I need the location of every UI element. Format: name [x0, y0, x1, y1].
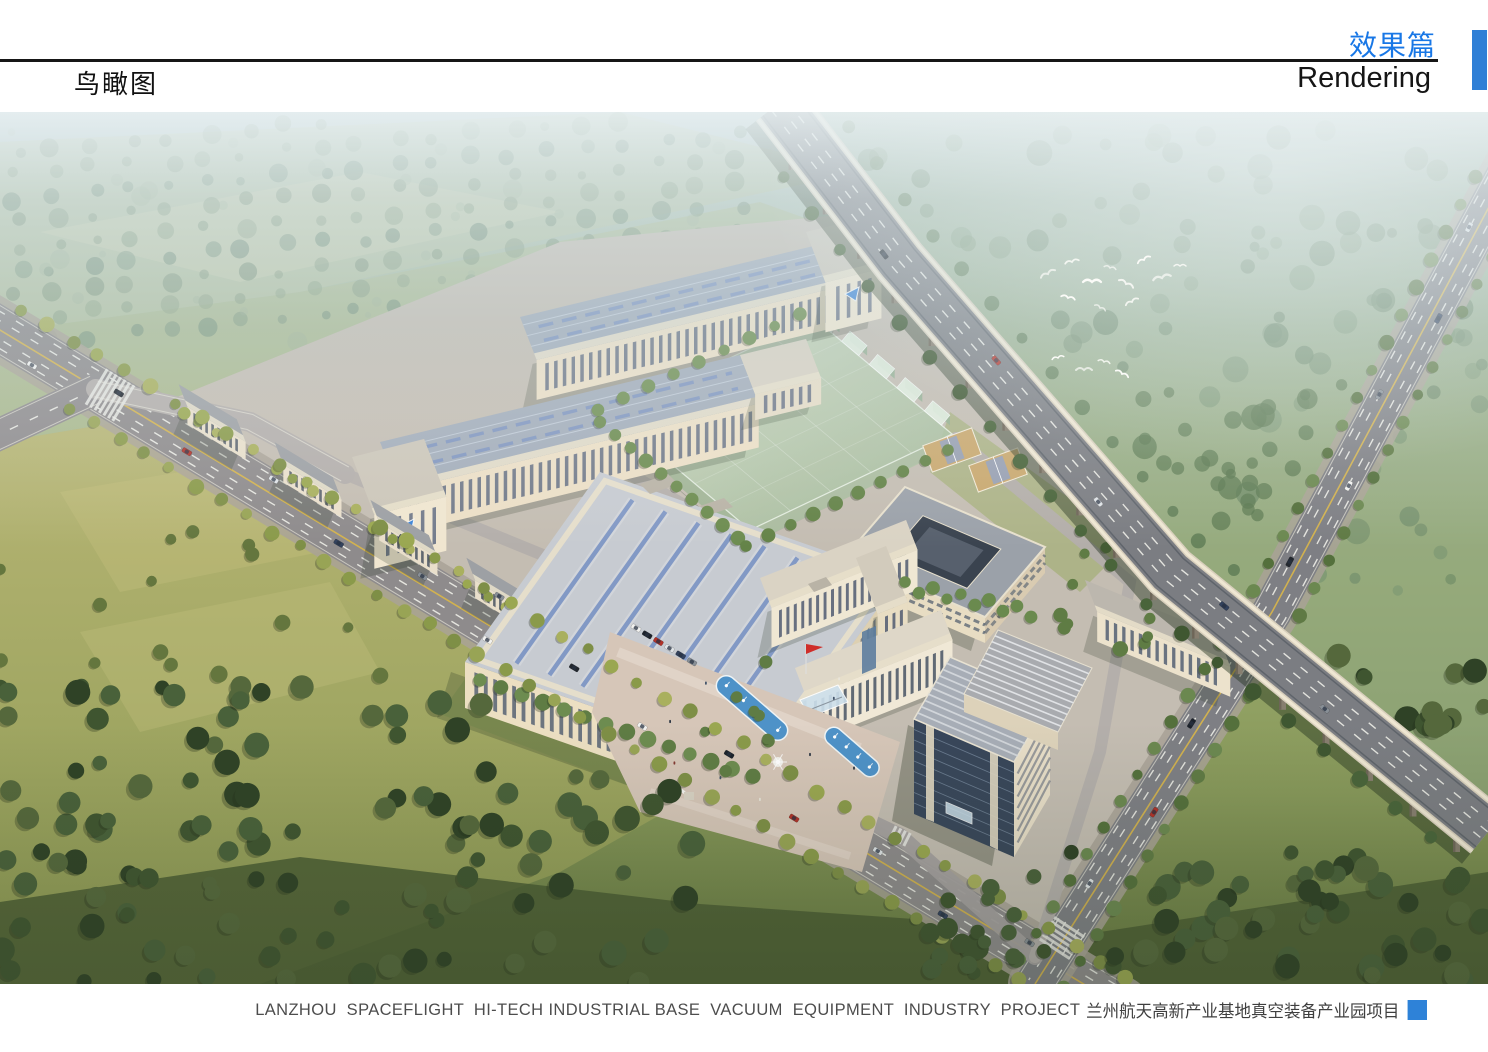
section-title-chinese: 效果篇 — [1349, 24, 1436, 64]
rendering-canvas — [0, 112, 1488, 984]
bottom-shade — [0, 112, 1488, 984]
header-blue-tab-icon — [1472, 30, 1487, 90]
footer-caption-chinese: 兰州航天高新产业基地真空装备产业园项目 — [1087, 997, 1400, 1022]
aerial-rendering-image — [0, 112, 1488, 984]
footer-blue-square-icon — [1408, 1000, 1427, 1020]
presentation-page: 鸟瞰图 效果篇 Rendering — [0, 0, 1488, 1052]
header-rule — [0, 59, 1438, 62]
page-title: 鸟瞰图 — [74, 64, 158, 101]
section-title-english: Rendering — [1297, 62, 1431, 95]
footer-caption-english: LANZHOU SPACEFLIGHT HI-TECH INDUSTRIAL B… — [256, 1000, 1081, 1020]
footer-caption: LANZHOU SPACEFLIGHT HI-TECH INDUSTRIAL B… — [256, 997, 1427, 1022]
